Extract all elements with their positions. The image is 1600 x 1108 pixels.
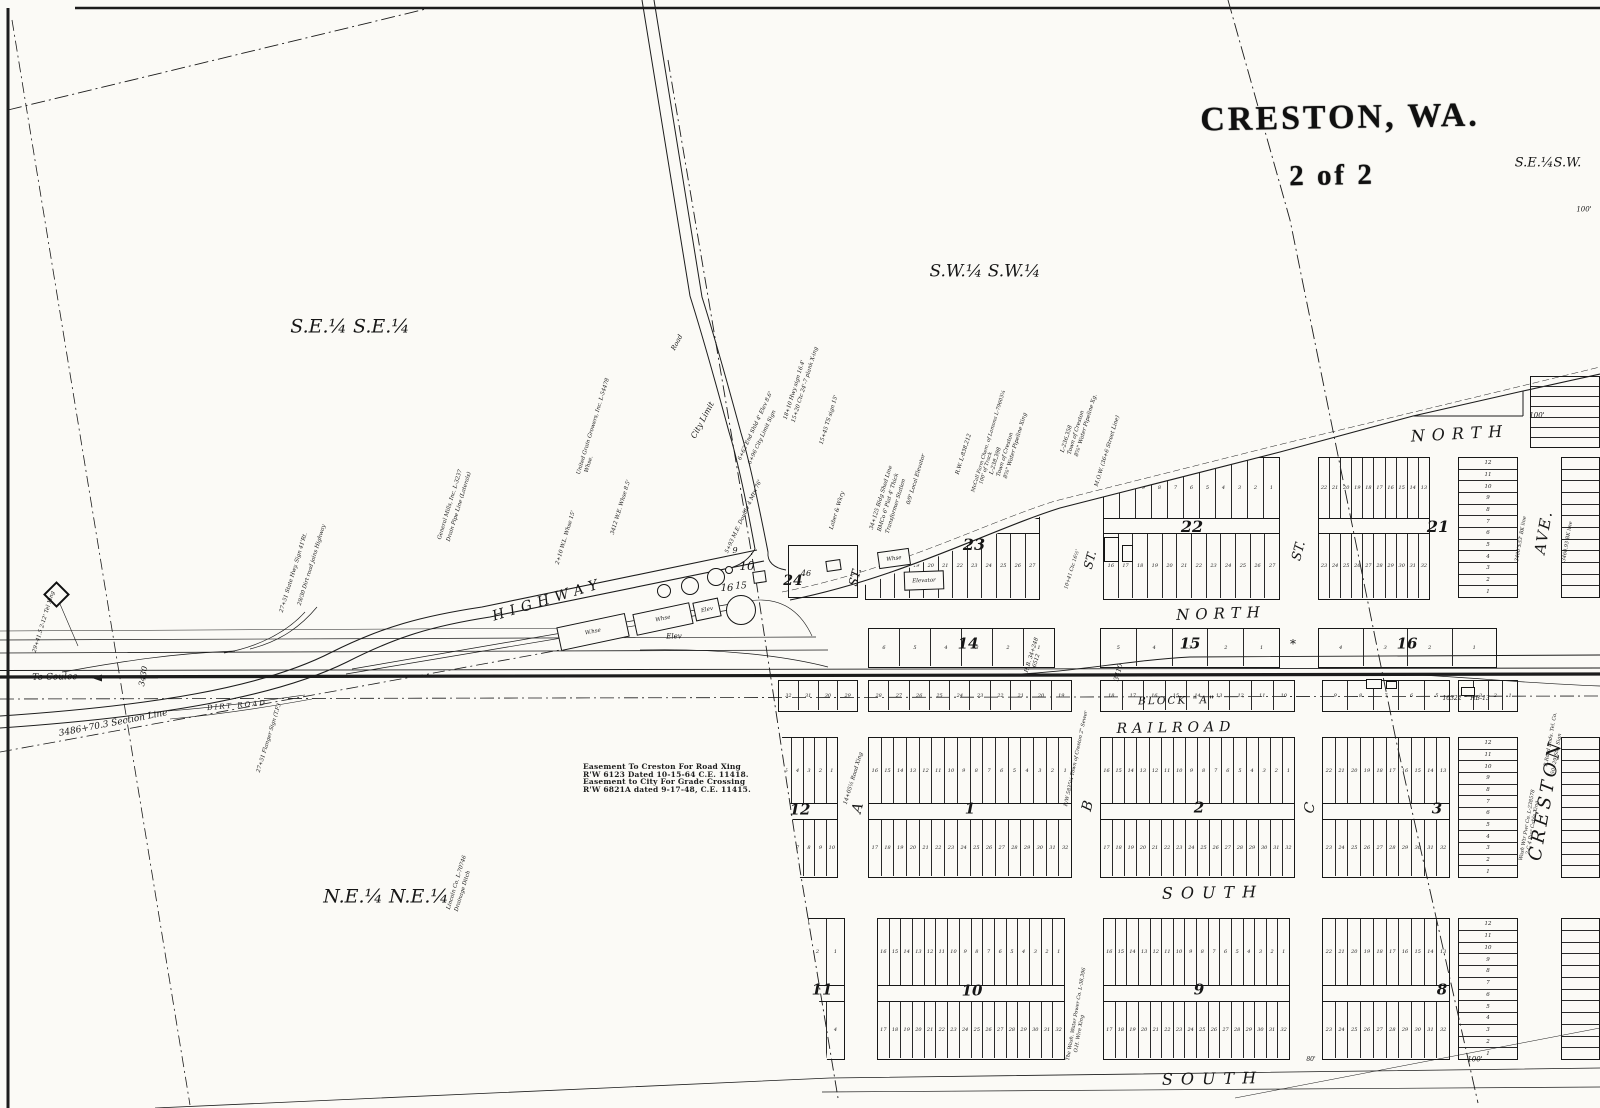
lot-number: 14 (897, 768, 903, 774)
lot-cell: 24 (959, 1002, 971, 1058)
lot-number: 31 (1427, 1027, 1433, 1033)
lot-number: 20 (1141, 1027, 1147, 1033)
lot-cell (1562, 784, 1599, 796)
lot-cell: 32 (1058, 820, 1071, 876)
lot-cell: 23 (1173, 820, 1185, 876)
lot-number: 1 (1287, 768, 1290, 774)
lot-cell: 4 (1459, 550, 1517, 562)
lot-number: 10 (1485, 945, 1492, 951)
lot-number: 5 (1206, 485, 1209, 491)
block-alley (1323, 804, 1449, 819)
lot-number: 26 (985, 1027, 991, 1033)
lot-number: 9 (1486, 957, 1490, 963)
lot-number: 17 (1389, 949, 1395, 955)
lot-number: 28 (1011, 845, 1017, 851)
lot-cell: 11 (1459, 469, 1517, 481)
storage-tank (681, 577, 699, 595)
lot-cell: 21 (924, 1002, 936, 1058)
map-label: 15 (1180, 637, 1201, 652)
lot-cell: 22 (1319, 458, 1329, 518)
block-8: 2221201918171615141323242526272829303132 (1322, 918, 1450, 1060)
lot-cell: 24 (1184, 1002, 1196, 1058)
lot-cell: 6 (995, 738, 1008, 803)
lot-cell: 18 (1373, 738, 1386, 803)
lot-number: 6 (1000, 768, 1003, 774)
building (1386, 681, 1397, 689)
lot-number: 1 (1486, 869, 1490, 875)
lot-number: 2 (816, 949, 819, 955)
lot-cell (1562, 865, 1599, 877)
lot-cell: 19 (1126, 1002, 1138, 1058)
lot-number: 24 (962, 1027, 968, 1033)
lot-number: 7 (1384, 693, 1387, 699)
lot-number: 11 (1164, 768, 1170, 774)
lot-number: 5 (1435, 693, 1438, 699)
lot-number: 28 (1234, 1027, 1240, 1033)
lot-cell: 2 (814, 738, 825, 803)
lot-number: 3 (1034, 949, 1037, 955)
lot-cell: 1 (826, 919, 844, 985)
lot-number: 12 (1152, 768, 1158, 774)
lot-cell: 6 (1459, 989, 1517, 1001)
lot-cell: 1 (1452, 629, 1497, 666)
lot-number: 12 (1485, 921, 1492, 927)
lot-number: 13 (915, 949, 921, 955)
easement-note: Easement To Creston For Road XingR'W 612… (583, 763, 751, 793)
map-label: 100' (1529, 413, 1544, 420)
lot-cell: 32 (1052, 1002, 1064, 1058)
lot-number: 1 (1509, 693, 1512, 699)
lot-cell (1562, 760, 1599, 772)
lot-number: 2 (1051, 768, 1054, 774)
lot-number: 3 (807, 768, 810, 774)
lot-number: 21 (1338, 949, 1344, 955)
lot-number: 13 (1216, 693, 1222, 699)
lot-cell: 19 (1360, 919, 1373, 985)
lot-cell (1562, 965, 1599, 977)
lot-number: 4 (1339, 645, 1342, 651)
map-label: 16322 (1442, 696, 1461, 702)
lot-cell: 23 (1323, 820, 1335, 876)
lot-cell (1562, 842, 1599, 854)
lot-number: 25 (974, 1027, 980, 1033)
lot-cell: 10 (1459, 480, 1517, 492)
lot-number: 1 (1057, 949, 1060, 955)
lot-cell: 13 (906, 738, 919, 803)
lot-number: 26 (1213, 845, 1219, 851)
lot-number: 15 (1415, 768, 1421, 774)
lot-cell: 31 (1424, 820, 1437, 876)
lot-number: 31 (805, 693, 811, 699)
lot-number: 26 (1254, 563, 1260, 569)
map-label: 100' (1467, 1057, 1482, 1064)
lot-cell: 25 (1235, 534, 1250, 598)
lot-cell (1562, 458, 1599, 469)
lot-number: 8 (975, 768, 978, 774)
lot-cell: 13 (912, 919, 924, 985)
lot-number: 27 (896, 693, 902, 699)
lot-cell: 30 (818, 681, 838, 710)
warehouse-spur-merge (748, 600, 812, 636)
lot-number: 24 (1188, 1027, 1194, 1033)
lot-number: 22 (957, 563, 963, 569)
lot-cell: 14 (1126, 919, 1138, 985)
map-title: CRESTON, WA. (1200, 99, 1480, 138)
lot-cell: 2 (1207, 629, 1243, 666)
map-label: 22 (1181, 519, 1203, 535)
map-label: 9 (1194, 983, 1204, 998)
lot-number: 23 (1326, 1027, 1332, 1033)
lot-number: 28 (875, 693, 881, 699)
lot-cell: 1 (826, 738, 837, 803)
lot-cell: 32 (1436, 820, 1449, 876)
lot-number: 2 (1224, 645, 1227, 651)
building (752, 570, 767, 584)
lot-cell: 29 (1398, 820, 1411, 876)
lot-number: 5 (1486, 822, 1490, 828)
lot-number: 15 (892, 949, 898, 955)
lot-cell: 1 (1459, 865, 1517, 877)
lot-number: 11 (1259, 693, 1265, 699)
lot-number: 13 (910, 768, 916, 774)
lot-cell: 3 (1459, 562, 1517, 574)
lot-cell: 17 (1386, 919, 1399, 985)
lot-number: 29 (1020, 1027, 1026, 1033)
siding-merge-right (640, 650, 828, 667)
map-label: 11 (812, 983, 833, 998)
lot-number: 8 (1486, 507, 1490, 513)
lot-number: 24 (1188, 845, 1194, 851)
lot-number: 30 (1261, 845, 1267, 851)
lot-cell: 4 (1246, 738, 1258, 803)
lot-number: 4 (796, 768, 799, 774)
lot-number: 27 (999, 845, 1005, 851)
lot-cell: 11 (1161, 919, 1173, 985)
lot-number: 8 (1158, 485, 1161, 491)
lot-cell: 20 (1347, 738, 1360, 803)
lot-cell: 5 (1459, 1000, 1517, 1012)
lot-cell (1531, 396, 1599, 406)
lot-row: 16151413121110987654321 (869, 738, 1071, 804)
lot-cell: 14 (1424, 738, 1437, 803)
lot-number: 22 (1164, 845, 1170, 851)
lot-cell: 22 (1323, 738, 1335, 803)
lot-number: 22 (939, 1027, 945, 1033)
lot-number: 19 (897, 845, 903, 851)
lot-cell: 21 (919, 820, 932, 876)
lot-number: 32 (1440, 1027, 1446, 1033)
map-label: 12 (790, 803, 811, 818)
lot-number: 2 (1486, 577, 1490, 583)
lot-number: 12 (1485, 460, 1492, 466)
map-label: 8 (1437, 983, 1447, 998)
lot-number: 26 (1015, 563, 1021, 569)
lot-cell (1562, 953, 1599, 965)
map-label: 16 (1397, 637, 1418, 652)
lot-cell: 10 (1459, 760, 1517, 772)
lot-number: 25 (1199, 1027, 1205, 1033)
lot-cell: 25 (1340, 534, 1351, 598)
lot-number: 17 (1103, 845, 1109, 851)
lot-cell: 1 (1243, 629, 1279, 666)
lot-number: 8 (975, 949, 978, 955)
lot-cell: 15 (1396, 458, 1407, 518)
lot-number: 12 (927, 949, 933, 955)
lot-number: 1 (830, 768, 833, 774)
lot-number: 3 (1259, 949, 1262, 955)
lot-cell: 27 (1025, 534, 1040, 598)
lot-cell: 5 (1233, 738, 1245, 803)
lot-cell: 21 (1329, 458, 1340, 518)
lot-number: 4 (1026, 768, 1029, 774)
lot-number: 14 (1410, 485, 1416, 491)
lot-cell: 2 (1247, 458, 1263, 518)
lot-cell: 27 (1373, 820, 1386, 876)
lot-cell: 2 (1459, 574, 1517, 586)
lot-cell: 31 (1407, 534, 1418, 598)
lot-number: 2 (1486, 1039, 1490, 1045)
lot-number: 26 (986, 845, 992, 851)
lot-number: 16 (1387, 485, 1393, 491)
lot-cell: 15 (1411, 738, 1424, 803)
lot-cell: 2 (1266, 919, 1278, 985)
lot-cell: 8 (971, 919, 983, 985)
lot-number: 4 (944, 645, 947, 651)
lot-cell: 23 (1173, 1002, 1185, 1058)
lot-number: 31 (1410, 563, 1416, 569)
lot-cell: 13 (1436, 738, 1449, 803)
lot-cell: 25 (929, 681, 949, 710)
lot-cell: 28 (869, 681, 888, 710)
map-label: 14 (958, 637, 979, 652)
lot-cell: 13 (1138, 919, 1150, 985)
lot-number: 1 (1486, 1051, 1490, 1057)
lot-row: 22212019181716151413 (1319, 458, 1429, 519)
lot-number: 23 (977, 693, 983, 699)
lot-number: 32 (785, 693, 791, 699)
lot-cell (1562, 738, 1599, 749)
lot-number: 5 (1486, 542, 1490, 548)
lot-cell: 23 (1206, 534, 1221, 598)
lot-cell: 22 (1161, 820, 1173, 876)
lot-cell: 16 (1101, 738, 1112, 803)
lot-cell: 21 (1010, 681, 1030, 710)
lot-number: 8 (1202, 768, 1205, 774)
lot-cell: 23 (947, 1002, 959, 1058)
lot-cell (1562, 1012, 1599, 1024)
lot-number: 9 (1189, 949, 1192, 955)
lot-cell: 25 (1347, 1002, 1360, 1058)
lot-number: 24 (957, 693, 963, 699)
lot-cell (1562, 795, 1599, 807)
lot-cell: 12 (1150, 919, 1162, 985)
lot-number: 28 (1237, 845, 1243, 851)
lot-number: 32 (1440, 845, 1446, 851)
map-label: S.E.¼ S.E.¼ (290, 318, 409, 337)
lot-number: 22 (997, 693, 1003, 699)
lot-number: 19 (904, 1027, 910, 1033)
lot-number: 16 (880, 949, 886, 955)
lot-cell: 7 (1459, 977, 1517, 989)
lot-cell: 29 (1385, 534, 1396, 598)
lot-number: 31 (1427, 845, 1433, 851)
lot-cell (1562, 919, 1599, 930)
lot-row: 17181920212223242526272829303132 (1101, 819, 1294, 876)
lot-number: 21 (1018, 693, 1024, 699)
lot-cell: 25 (971, 1002, 983, 1058)
lot-cell: 1 (1459, 585, 1517, 597)
lot-row: 16151413121110987654321 (878, 919, 1064, 986)
lot-cell: 22 (931, 820, 944, 876)
lot-cell: 27 (1264, 534, 1279, 598)
lot-number: 21 (1338, 768, 1344, 774)
lot-cell: 4 (826, 1002, 844, 1058)
lot-number: 21 (1152, 845, 1158, 851)
lot-number: 18 (1108, 693, 1114, 699)
block-a-1: 28272625242322212019 (868, 680, 1072, 712)
lot-number: 1 (834, 949, 837, 955)
map-label: 24 (783, 574, 802, 588)
lot-number: 19 (1058, 693, 1064, 699)
lot-number: 18 (1118, 1027, 1124, 1033)
lot-cell (1562, 504, 1599, 516)
lot-cell: 3 (1258, 738, 1270, 803)
lot-number: 11 (1485, 933, 1492, 939)
lot-cell: 3 (803, 738, 814, 803)
lot-cell: 2 (1046, 738, 1059, 803)
lot-cell (1562, 930, 1599, 942)
lot-number: 4 (1022, 949, 1025, 955)
lot-number: 20 (1166, 563, 1172, 569)
map-label: RAILROAD (1116, 720, 1235, 736)
lot-number: 15 (1118, 949, 1124, 955)
lot-cell: 31 (1046, 820, 1059, 876)
lot-cell: 19 (900, 1002, 912, 1058)
lot-number: 5 (1238, 768, 1241, 774)
lot-number: 31 (1049, 845, 1055, 851)
lot-cell: 18 (1132, 534, 1147, 598)
lot-row: 32313029 (779, 681, 857, 710)
lot-cell: 18 (881, 820, 894, 876)
lot-cell: 12 (1229, 681, 1251, 710)
lot-cell: 16 (1398, 919, 1411, 985)
map-label: 1 (965, 802, 975, 817)
block-alley (1319, 519, 1429, 533)
lot-number: 6 (1226, 768, 1229, 774)
lot-cell: 24 (1335, 820, 1348, 876)
lot-number: 10 (829, 845, 835, 851)
lot-cell (1562, 830, 1599, 842)
lot-number: 8 (1486, 968, 1490, 974)
lot-number: 8 (1359, 693, 1362, 699)
lot-number: 16 (1106, 949, 1112, 955)
lot-cell (1531, 386, 1599, 396)
lot-number: 8 (1201, 949, 1204, 955)
lot-number: 12 (1153, 949, 1159, 955)
lot-cell: 1 (1502, 681, 1517, 710)
lot-cell: 1 (1277, 919, 1289, 985)
lot-cell: 18 (1112, 820, 1124, 876)
lot-cell: 7 (1209, 738, 1221, 803)
lot-number: 20 (910, 845, 916, 851)
lot-cell: 10 (1273, 681, 1295, 710)
lot-number: 20 (1038, 693, 1044, 699)
lot-number: 19 (1364, 949, 1370, 955)
lot-cell: 26 (1250, 534, 1265, 598)
lot-cell: 12 (924, 919, 936, 985)
lot-cell: 5 (1101, 629, 1136, 666)
lot-cell: 31 (798, 681, 818, 710)
lot-number: 20 (1351, 768, 1357, 774)
building-label: Elevator (912, 577, 936, 584)
lot-number: 27 (1376, 845, 1382, 851)
lot-cell: 2 (1459, 1036, 1517, 1048)
lot-cell: 32 (1277, 1002, 1289, 1058)
lot-cell (1562, 772, 1599, 784)
lot-cell: 17 (1118, 534, 1133, 598)
lot-number: 21 (1181, 563, 1187, 569)
lot-number: 12 (922, 768, 928, 774)
map-label: 16 (721, 584, 734, 594)
lot-number: 31 (1273, 845, 1279, 851)
lot-number: 7 (1486, 799, 1490, 805)
storage-tank (725, 566, 733, 574)
lot-number: 7 (1486, 519, 1490, 525)
lot-number: 25 (1240, 563, 1246, 569)
lot-cell: 5 (1006, 919, 1018, 985)
lot-number: 7 (1486, 980, 1490, 986)
lot-row: 161718192021222324252627 (1104, 533, 1279, 598)
lot-row: 22212019181716151413 (1323, 738, 1449, 804)
plat-map-creston: 1110987654321161718192021222324252627111… (0, 0, 1600, 1108)
lot-number: 20 (1343, 485, 1349, 491)
lot-number: 28 (1376, 563, 1382, 569)
extra-line-left (0, 628, 600, 631)
main-track (0, 674, 1600, 677)
lot-number: 4 (1486, 554, 1490, 560)
lot-cell (1562, 1036, 1599, 1048)
lot-cell: 17 (878, 1002, 889, 1058)
lot-number: 23 (971, 563, 977, 569)
map-label: 80' (1306, 1057, 1315, 1063)
lot-number: 24 (1332, 563, 1338, 569)
lot-cell: 30 (1254, 1002, 1266, 1058)
lot-row: 17181920212223242526272829303132 (1104, 1001, 1289, 1058)
lot-number: 17 (1376, 485, 1382, 491)
map-label: SOUTH (1162, 884, 1264, 902)
lot-cell: 23 (1319, 534, 1329, 598)
lot-cell: 10 (826, 820, 837, 876)
lot-cell: 16 (878, 919, 889, 985)
lot-cell (1562, 574, 1599, 586)
lot-number: 23 (950, 1027, 956, 1033)
lot-cell: 6 (1221, 738, 1233, 803)
lot-cell: 4 (1017, 919, 1029, 985)
lot-cell: 27 (1221, 820, 1233, 876)
map-label: N.E.¼ N.E.¼ (323, 888, 449, 907)
lot-row: 23242526272829303132 (1319, 533, 1429, 598)
north-row-line (0, 637, 816, 640)
lot-cell: 30 (1029, 1002, 1041, 1058)
lot-cell: 17 (1373, 458, 1384, 518)
lot-cell: 9 (1184, 919, 1196, 985)
lot-number: 31 (1044, 1027, 1050, 1033)
lot-number: 10 (1281, 693, 1287, 699)
lot-cell: 10 (947, 919, 959, 985)
building (1122, 545, 1133, 562)
lot-cell: 19 (1351, 458, 1362, 518)
lot-cell: 5 (1008, 738, 1021, 803)
